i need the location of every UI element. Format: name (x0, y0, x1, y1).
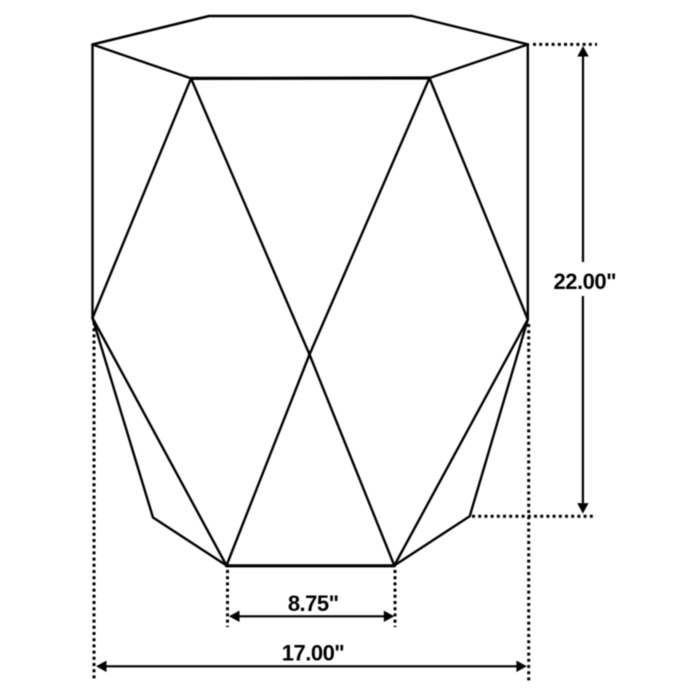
svg-text:8.75": 8.75" (288, 591, 339, 616)
svg-text:17.00": 17.00" (282, 641, 344, 666)
svg-text:22.00": 22.00" (554, 269, 616, 294)
